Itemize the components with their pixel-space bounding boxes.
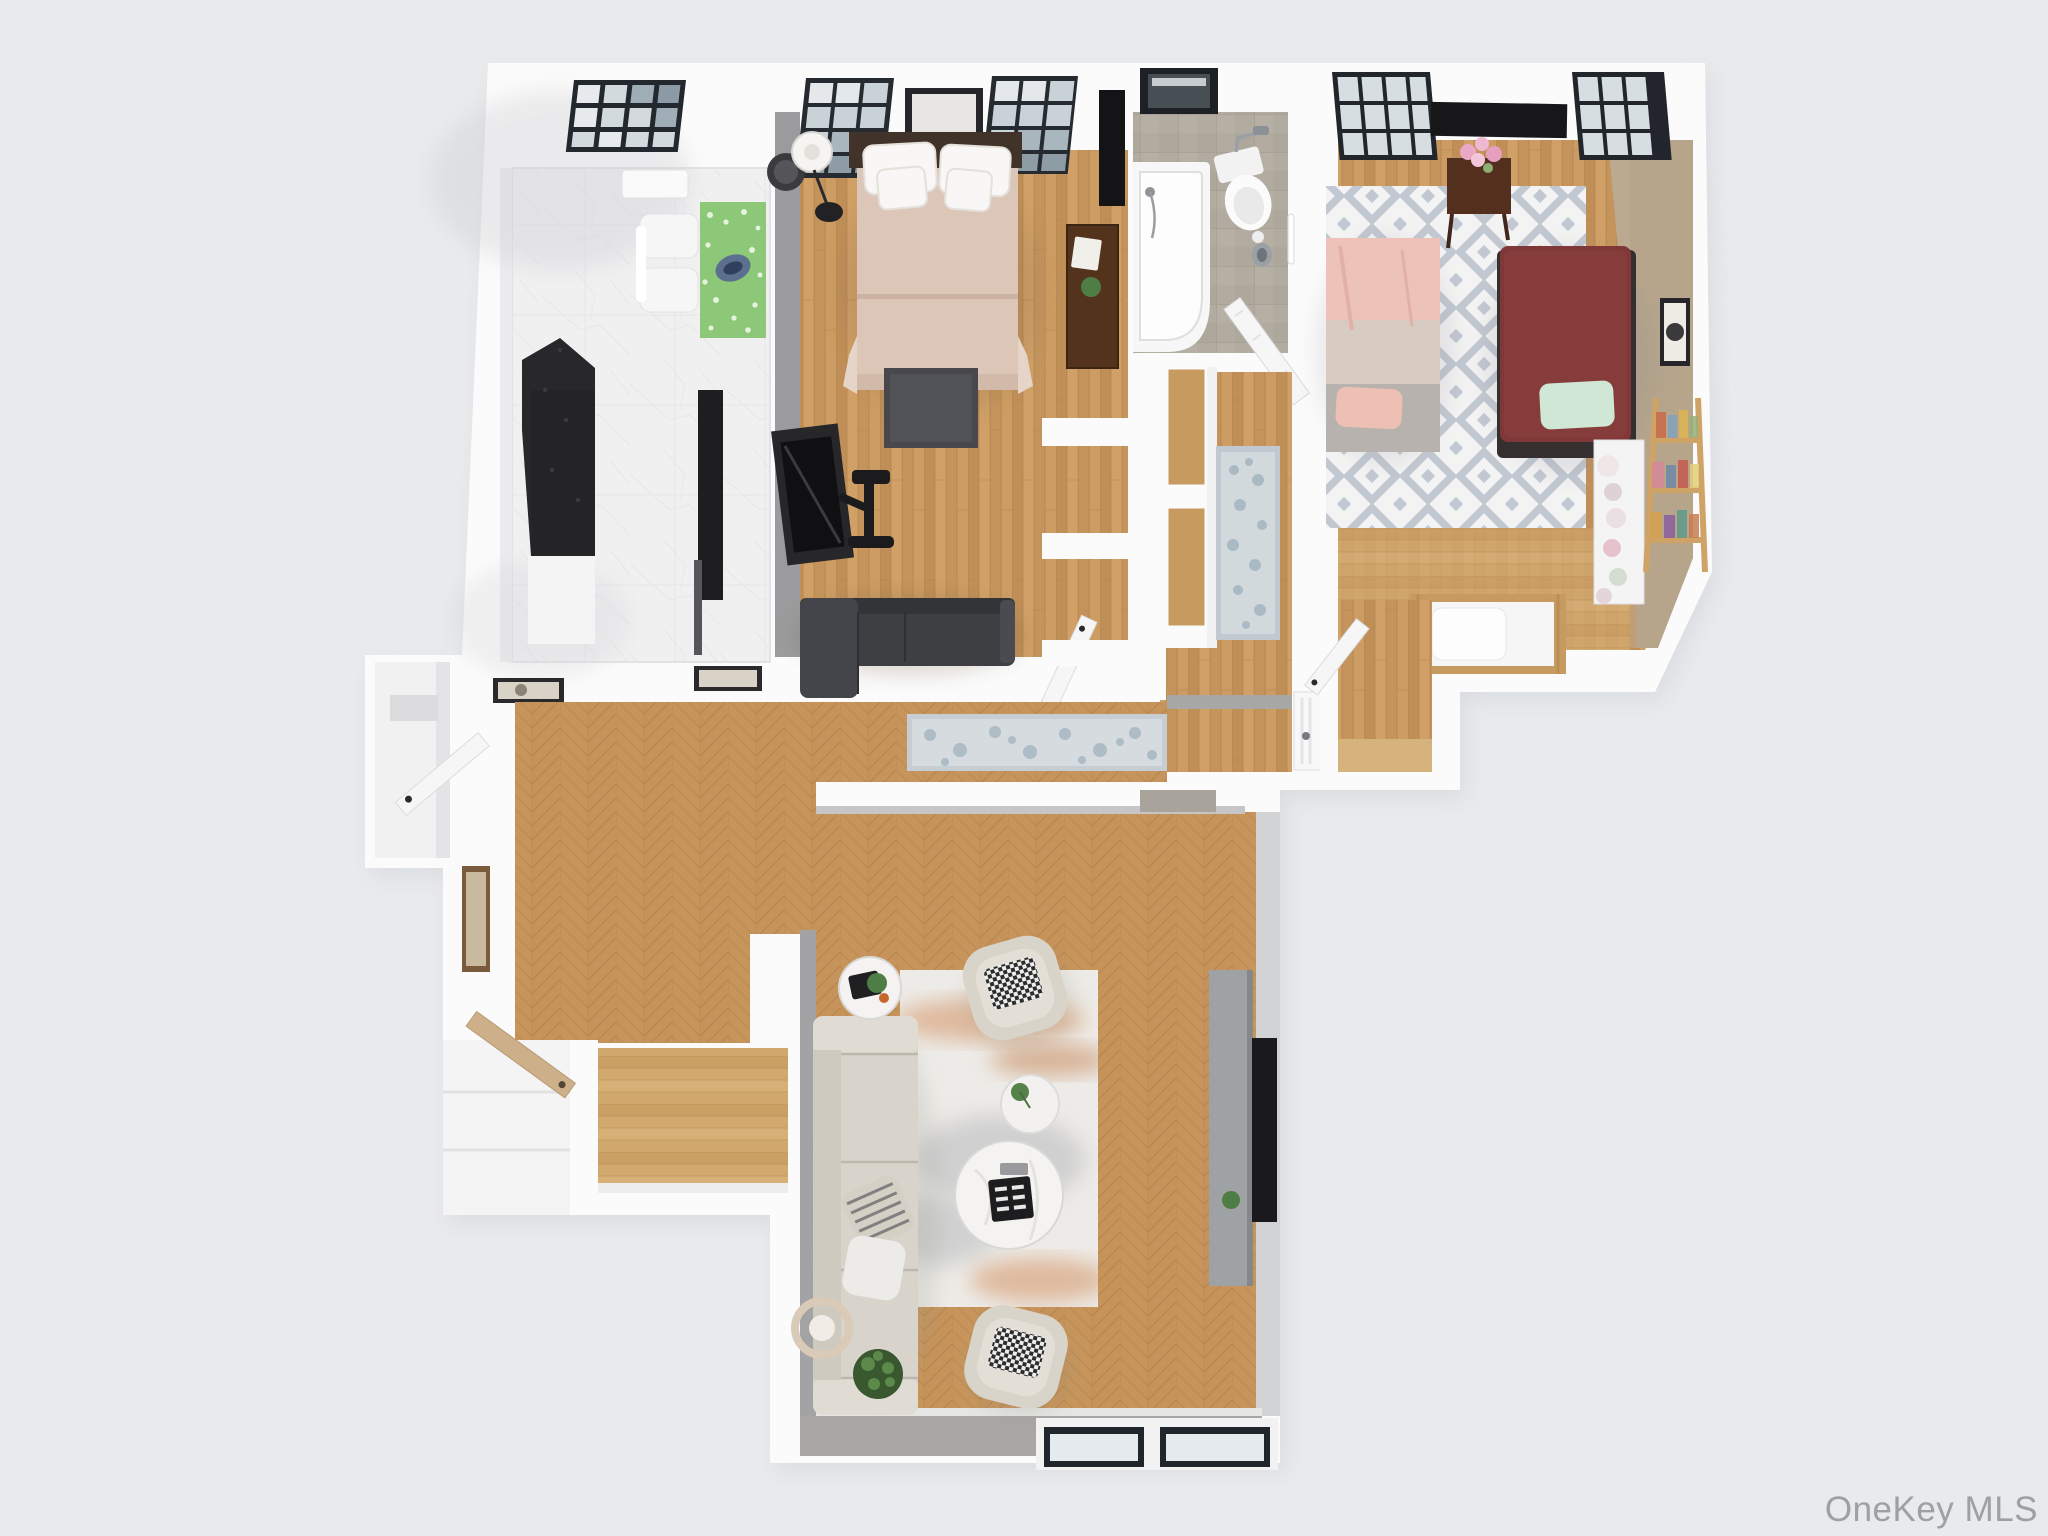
svg-text:OneKey MLS: OneKey MLS	[1825, 1490, 2038, 1529]
